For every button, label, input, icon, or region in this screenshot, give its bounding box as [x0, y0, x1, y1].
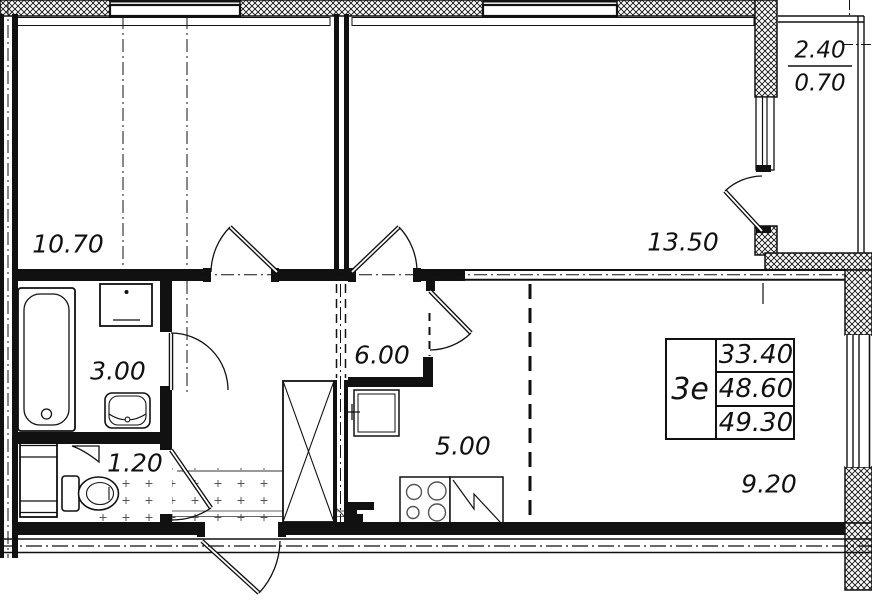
bottom-walls [0, 522, 872, 553]
window-living [483, 5, 617, 16]
stamp-divider-vertical [715, 340, 717, 438]
stove [400, 477, 450, 525]
door-living [352, 227, 417, 272]
room-label-living: 13.50 [647, 230, 719, 255]
window-bedroom [110, 5, 240, 16]
room-label-kitchen: 5.00 [435, 434, 491, 459]
stamp-total-area: 49.30 [719, 410, 793, 436]
stamp-divider-row1 [717, 371, 793, 373]
window-balcony [756, 97, 774, 170]
door-bathroom [171, 333, 228, 390]
door-kitchen [430, 291, 471, 350]
floor-plan: 10.70 13.50 3.00 1.20 6.00 5.00 9.20 2.4… [0, 0, 872, 600]
room-label-hallway: 6.00 [354, 343, 410, 368]
balcony-area-reduced: 0.70 [794, 73, 845, 96]
window-kitchen-living [845, 335, 871, 467]
room-label-toilet: 1.20 [107, 451, 163, 476]
water-heater [20, 439, 57, 517]
washing-machine [100, 284, 152, 326]
kitchen-counter [450, 477, 503, 525]
door-entrance [202, 541, 280, 593]
duct-corner [72, 446, 99, 462]
stamp-divider-row2 [717, 405, 793, 407]
kitchen-duct-column [348, 502, 374, 525]
plan-drawing [0, 0, 872, 600]
stamp-area: 48.60 [719, 376, 793, 402]
room-label-kitchen-living: 9.20 [741, 472, 797, 497]
toilet [62, 476, 119, 511]
room-label-bedroom: 10.70 [32, 232, 104, 257]
bathtub [18, 288, 75, 431]
balcony-area-full: 2.40 [794, 40, 845, 63]
stamp-apartment-type: 3е [671, 375, 709, 405]
bathroom-sink [105, 393, 150, 428]
room-label-bathroom: 3.00 [90, 359, 146, 384]
wardrobe [283, 381, 334, 522]
door-bedroom [211, 227, 277, 272]
stamp-living-area: 33.40 [719, 342, 793, 368]
door-balcony [725, 176, 762, 231]
kitchen-sink [344, 390, 399, 436]
